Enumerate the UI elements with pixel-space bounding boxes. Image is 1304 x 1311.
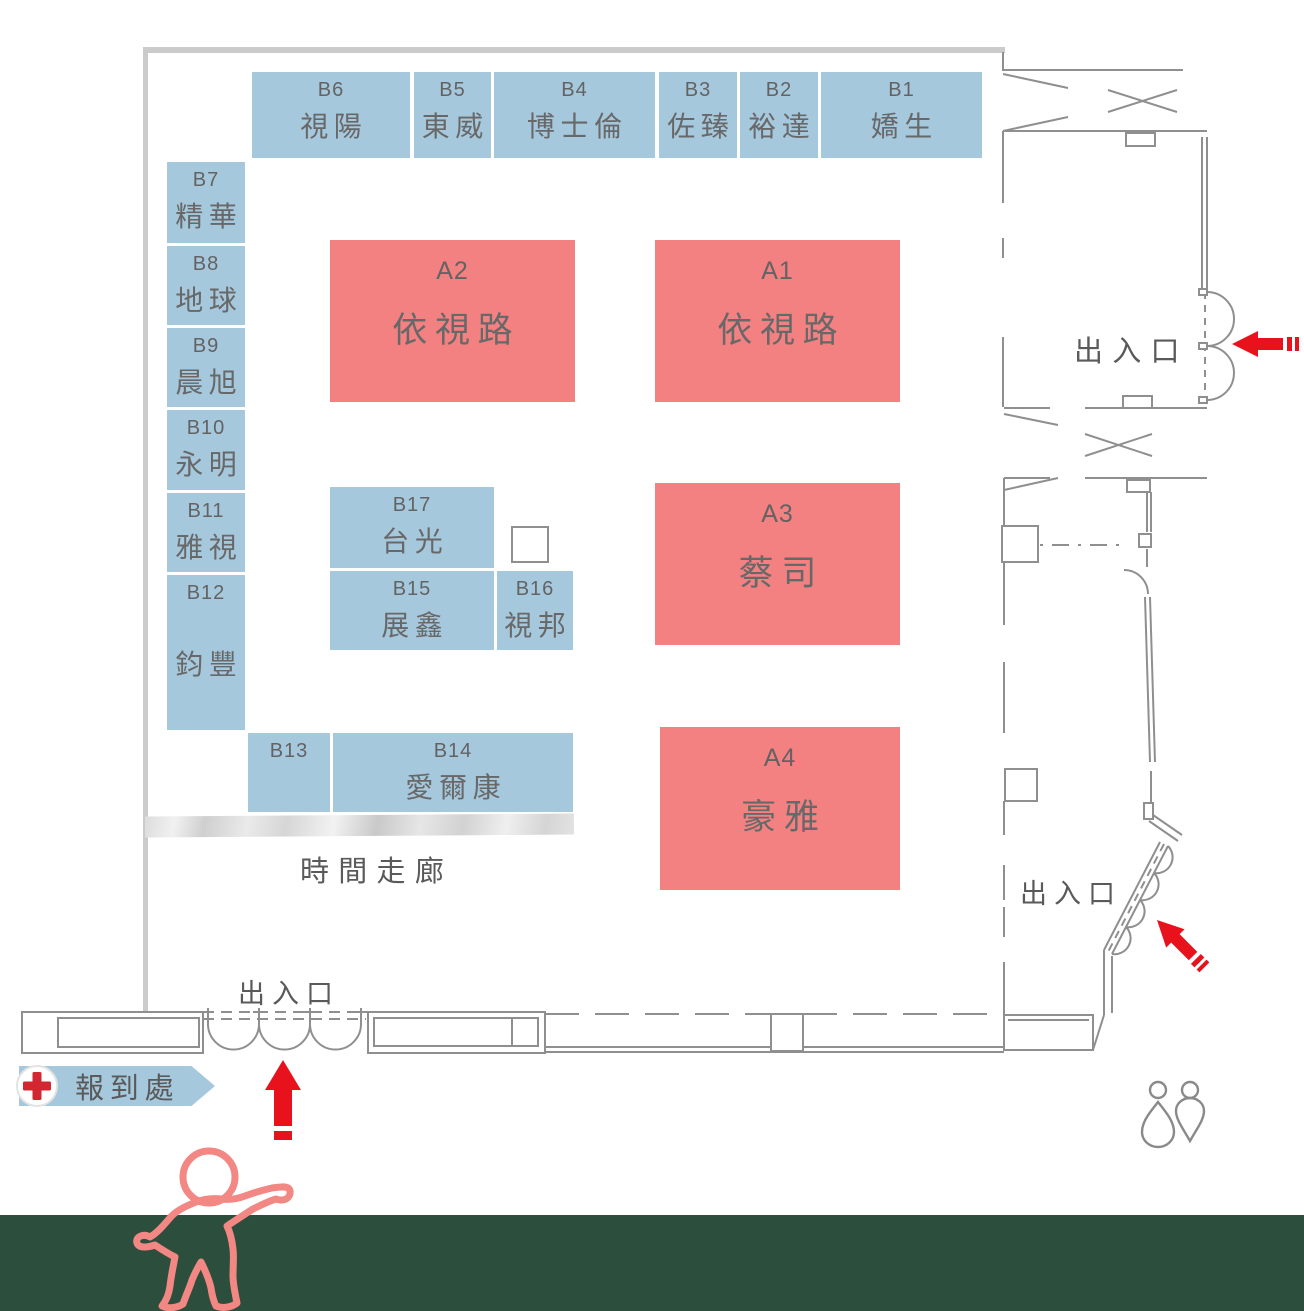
restroom-icon <box>1142 1082 1204 1147</box>
entrance-label-right-bottom: 出入口 <box>1020 872 1122 911</box>
booth-b15: B15 展鑫 <box>330 571 494 650</box>
time-corridor-label: 時間走廊 <box>300 848 453 890</box>
booth-id: A2 <box>436 257 469 286</box>
booth-id: A3 <box>761 500 794 529</box>
booth-b9: B9 晨旭 <box>167 328 245 407</box>
booth-b11: B11 雅視 <box>167 493 245 572</box>
booth-name: 依視路 <box>385 302 521 353</box>
booth-name: 鈞豐 <box>170 643 243 683</box>
booth-id: A1 <box>761 257 794 286</box>
booth-id: B17 <box>393 494 432 517</box>
booth-name: 視邦 <box>499 604 572 644</box>
booth-name: 佐臻 <box>662 105 735 145</box>
booth-a4: A4 豪雅 <box>660 727 900 890</box>
booth-b2: B2 裕達 <box>740 72 818 158</box>
booth-id: B8 <box>193 253 219 276</box>
booth-b14: B14 愛爾康 <box>333 733 573 812</box>
arrow-right-entrance-icon <box>1232 331 1299 357</box>
booth-id: B6 <box>318 79 344 102</box>
booth-name: 裕達 <box>743 105 816 145</box>
booth-name: 永明 <box>170 443 243 483</box>
booth-id: B11 <box>187 500 224 523</box>
booth-id: B12 <box>187 582 226 605</box>
booth-id: B15 <box>393 578 432 601</box>
booth-b7: B7 精華 <box>167 162 245 243</box>
booth-id: B2 <box>766 79 792 102</box>
booth-id: B5 <box>439 79 465 102</box>
booth-b12: B12 鈞豐 <box>167 575 245 730</box>
empty-stand <box>511 526 549 563</box>
entrance-label-right-top: 出入口 <box>1074 328 1189 370</box>
booth-id: B10 <box>187 417 226 440</box>
booth-b4: B4 博士倫 <box>494 72 655 158</box>
entrance-label-main: 出入口 <box>238 972 340 1011</box>
time-corridor-band <box>145 814 574 838</box>
booth-id: B7 <box>193 169 219 192</box>
booth-name: 博士倫 <box>521 105 627 145</box>
booth-name: 依視路 <box>710 302 846 353</box>
booth-name: 蔡司 <box>731 545 824 596</box>
booth-b1: B1 嬌生 <box>821 72 982 158</box>
registration-banner: 報到處 <box>19 1066 215 1106</box>
booth-name: 展鑫 <box>376 604 449 644</box>
hall-wall-top <box>145 47 1005 53</box>
booth-b10: B10 永明 <box>167 410 245 490</box>
footer-band <box>0 1215 1304 1311</box>
booth-id: B3 <box>685 79 711 102</box>
booth-name: 雅視 <box>170 526 243 566</box>
arrow-bottom-right-entrance-icon <box>1148 911 1214 977</box>
hall-wall-left <box>143 47 148 1015</box>
booth-b6: B6 視陽 <box>252 72 410 158</box>
booth-id: B4 <box>561 79 587 102</box>
exhibition-floor-plan: B6 視陽 B5 東威 B4 博士倫 B3 佐臻 B2 裕達 B1 嬌生 B7 … <box>0 0 1304 1311</box>
booth-name: 視陽 <box>295 105 368 145</box>
booth-a2: A2 依視路 <box>330 240 575 402</box>
booth-name: 地球 <box>170 279 243 319</box>
booth-id: B1 <box>888 79 914 102</box>
booth-name: 精華 <box>170 195 243 235</box>
booth-name: 豪雅 <box>733 789 826 840</box>
booth-b13: B13 <box>248 733 330 812</box>
booth-id: B9 <box>193 335 219 358</box>
booth-id: B13 <box>270 740 309 763</box>
booth-id: B16 <box>516 578 555 601</box>
booth-name: 台光 <box>376 520 449 560</box>
registration-label: 報到處 <box>75 1065 179 1107</box>
booth-b3: B3 佐臻 <box>659 72 737 158</box>
booth-b16: B16 視邦 <box>497 571 573 650</box>
booth-a1: A1 依視路 <box>655 240 900 402</box>
booth-b17: B17 台光 <box>330 487 494 568</box>
arrow-main-entrance-icon <box>265 1060 301 1140</box>
booth-b5: B5 東威 <box>414 72 491 158</box>
booth-a3: A3 蔡司 <box>655 483 900 645</box>
booth-name: 晨旭 <box>170 361 243 401</box>
booth-b8: B8 地球 <box>167 246 245 325</box>
booth-id: A4 <box>764 744 797 773</box>
booth-id: B14 <box>434 740 473 763</box>
booth-name: 愛爾康 <box>400 766 506 806</box>
booth-name: 嬌生 <box>865 105 938 145</box>
booth-name: 東威 <box>416 105 489 145</box>
